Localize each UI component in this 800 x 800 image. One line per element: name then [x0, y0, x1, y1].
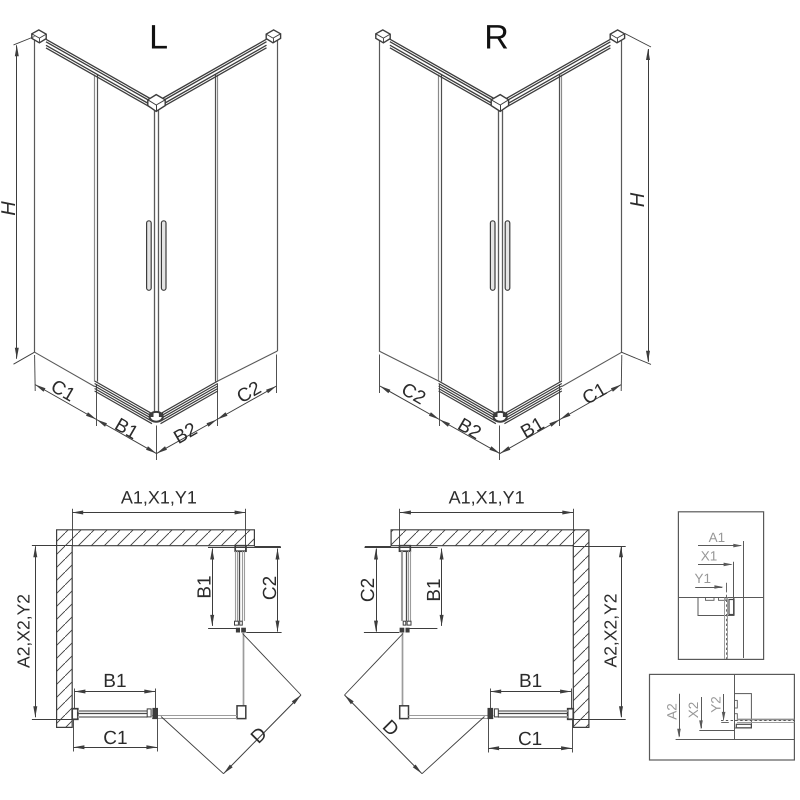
- svg-text:C1: C1: [518, 729, 542, 750]
- svg-text:B1: B1: [103, 671, 126, 692]
- svg-text:H: H: [627, 192, 649, 207]
- svg-text:Y2: Y2: [709, 696, 724, 713]
- svg-text:A2: A2: [665, 703, 680, 720]
- svg-text:X1: X1: [701, 549, 718, 564]
- svg-text:Y1: Y1: [695, 571, 712, 586]
- svg-text:A2,X2,Y2: A2,X2,Y2: [601, 594, 621, 668]
- svg-text:C1: C1: [103, 728, 127, 749]
- svg-text:X2: X2: [686, 702, 701, 719]
- svg-text:B1: B1: [424, 578, 445, 601]
- svg-text:B1: B1: [519, 671, 542, 692]
- svg-text:C2: C2: [358, 578, 379, 602]
- svg-text:C2: C2: [260, 576, 281, 600]
- svg-text:B1: B1: [195, 575, 216, 598]
- svg-text:A1,X1,Y1: A1,X1,Y1: [449, 487, 525, 507]
- svg-text:A2,X2,Y2: A2,X2,Y2: [14, 594, 34, 668]
- svg-text:A1,X1,Y1: A1,X1,Y1: [121, 487, 197, 507]
- svg-text:H: H: [0, 201, 20, 216]
- svg-text:L: L: [149, 19, 168, 57]
- svg-text:R: R: [484, 19, 509, 57]
- svg-text:A1: A1: [709, 530, 726, 545]
